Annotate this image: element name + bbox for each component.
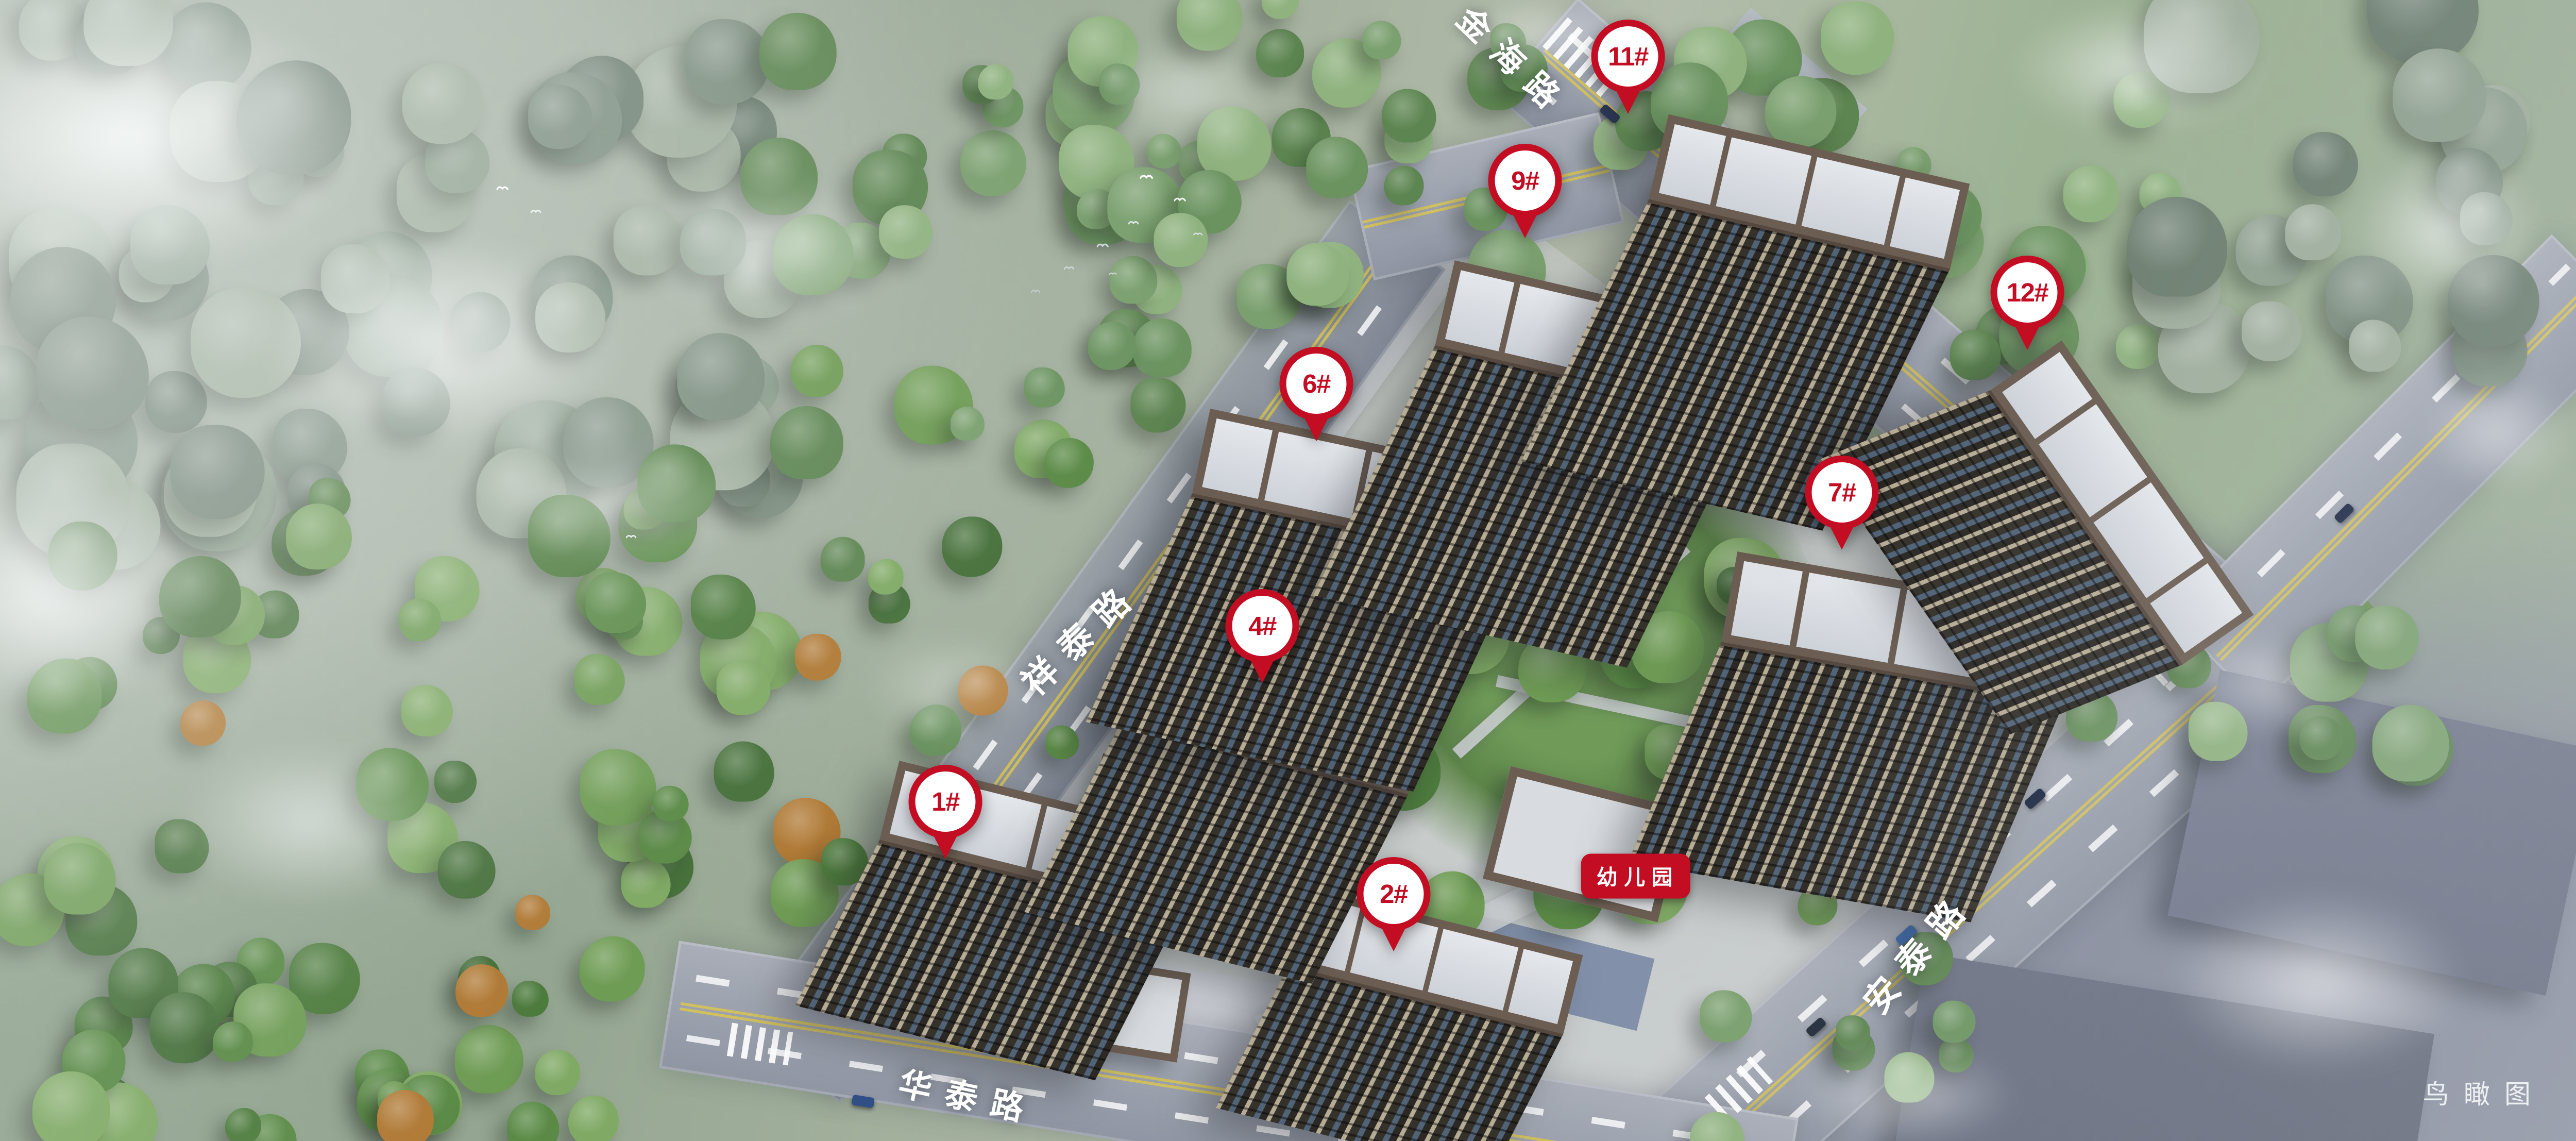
tree-clump xyxy=(1821,2,1894,75)
tree-clump xyxy=(507,1101,559,1141)
tree-clump xyxy=(145,371,207,433)
tree-clump xyxy=(1099,64,1140,105)
tree-clump xyxy=(1088,322,1136,370)
marker-circle: 2# xyxy=(1357,857,1431,931)
tree-clump xyxy=(759,13,837,90)
building-marker-4[interactable]: 4# xyxy=(1226,589,1299,683)
building-marker-9[interactable]: 9# xyxy=(1488,144,1562,238)
tree-clump xyxy=(84,0,174,66)
marker-label: 2# xyxy=(1380,879,1408,909)
tree-clump xyxy=(958,665,1008,715)
tree-clump xyxy=(1147,134,1181,168)
tree-clump xyxy=(1262,0,1299,19)
building-marker-7[interactable]: 7# xyxy=(1805,456,1879,550)
tree-clump xyxy=(680,209,746,276)
tree-clump xyxy=(714,742,774,802)
tree-clump xyxy=(149,993,220,1063)
tree-clump xyxy=(401,685,453,736)
tree-clump xyxy=(535,282,605,353)
marker-circle: 1# xyxy=(909,765,982,838)
tree-clump xyxy=(2355,606,2419,669)
tree-clump xyxy=(37,316,149,429)
aerial-rendering: 金海路 祥泰路 安泰路 华泰路 幼儿园 1# 2# 4# 6# 7# 9# 11… xyxy=(0,0,2576,1141)
tree-clump xyxy=(580,936,645,1002)
tree-clump xyxy=(1306,137,1368,198)
tree-clump xyxy=(653,786,689,821)
tree-clump xyxy=(357,748,429,820)
marker-label: 7# xyxy=(1828,477,1856,508)
tree-clump xyxy=(685,19,770,105)
tree-clump xyxy=(1256,29,1304,77)
marker-circle: 11# xyxy=(1591,20,1665,93)
tree-clump xyxy=(382,367,450,436)
tree-clump xyxy=(515,895,550,930)
tree-clump xyxy=(638,444,716,523)
tree-clump xyxy=(1363,21,1401,59)
tree-clump xyxy=(213,1021,253,1062)
tree-clump xyxy=(2127,197,2227,297)
tree-clump xyxy=(1765,76,1837,147)
scene-caption: 鸟瞰图 xyxy=(2423,1073,2545,1111)
tree-clump xyxy=(130,205,210,284)
marker-label: 1# xyxy=(931,786,959,817)
tree-clump xyxy=(568,1096,619,1141)
marker-label: 4# xyxy=(1248,611,1276,641)
tree-clump xyxy=(1933,1000,1976,1043)
tree-clump xyxy=(455,1025,523,1094)
tree-clump xyxy=(399,599,441,641)
tree-clump xyxy=(2144,0,2259,93)
tree-clump xyxy=(321,244,390,313)
marker-circle: 7# xyxy=(1805,456,1879,529)
tree-clump xyxy=(2460,192,2513,245)
tree-clump xyxy=(237,60,351,174)
tree-clump xyxy=(2448,255,2539,346)
tree-clump xyxy=(614,206,683,276)
tree-clump xyxy=(1177,0,1243,51)
tree-clump xyxy=(1044,438,1094,488)
tree-clump xyxy=(2242,301,2301,361)
marker-circle: 12# xyxy=(1991,256,2064,329)
tree-clump xyxy=(717,661,771,715)
tree-clump xyxy=(1286,243,1349,306)
tree-clump xyxy=(1024,367,1064,407)
tree-clump xyxy=(2299,716,2343,760)
marker-label: 11# xyxy=(1608,41,1648,72)
tree-clump xyxy=(225,1108,261,1141)
tree-clump xyxy=(1154,213,1208,267)
tree-clump xyxy=(586,572,646,632)
tree-clump xyxy=(434,761,477,803)
tree-clump xyxy=(1700,990,1752,1042)
tree-clump xyxy=(1384,166,1423,206)
kindergarten-badge: 幼儿园 xyxy=(1581,854,1690,899)
tree-clump xyxy=(1133,318,1192,377)
tree-clump xyxy=(535,1050,580,1096)
tree-clump xyxy=(942,516,1002,577)
tree-clump xyxy=(1382,89,1436,143)
marker-circle: 4# xyxy=(1226,589,1299,663)
tree-clump xyxy=(2116,324,2160,368)
building-marker-1[interactable]: 1# xyxy=(909,765,982,859)
tree-clump xyxy=(27,659,101,733)
marker-label: 12# xyxy=(2007,277,2048,308)
tree-clump xyxy=(677,333,765,421)
tree-clump xyxy=(438,841,496,899)
tree-clump xyxy=(1836,1015,1871,1050)
tree-clump xyxy=(450,292,511,353)
tree-clump xyxy=(512,981,548,1017)
tree-clump xyxy=(951,407,985,441)
tree-clump xyxy=(155,819,209,873)
tree-clump xyxy=(1045,726,1079,759)
tree-clump xyxy=(773,214,854,295)
tree-clump xyxy=(879,205,933,259)
building-marker-2[interactable]: 2# xyxy=(1357,857,1431,951)
tree-clump xyxy=(2063,166,2119,222)
tree-clump xyxy=(528,495,611,577)
tree-clump xyxy=(580,749,656,826)
tree-clump xyxy=(455,964,508,1017)
tree-clump xyxy=(1690,1112,1744,1141)
tree-clump xyxy=(978,64,1014,100)
building-marker-6[interactable]: 6# xyxy=(1280,347,1353,441)
marker-label: 9# xyxy=(1511,165,1539,196)
tree-clump xyxy=(820,537,865,582)
marker-circle: 9# xyxy=(1488,144,1562,217)
tree-clump xyxy=(791,344,843,397)
tree-clump xyxy=(159,556,241,637)
tree-clump xyxy=(1885,1052,1935,1102)
building-marker-12[interactable]: 12# xyxy=(1991,256,2064,350)
tree-clump xyxy=(910,704,961,756)
tree-clump xyxy=(2189,702,2248,761)
tree-clump xyxy=(770,406,843,479)
tree-clump xyxy=(574,654,625,704)
building-marker-11[interactable]: 11# xyxy=(1591,20,1665,114)
tree-clump xyxy=(960,130,1026,196)
tree-clump xyxy=(164,2,251,89)
marker-label: 6# xyxy=(1302,368,1330,399)
tree-clump xyxy=(528,85,592,149)
tree-clump xyxy=(868,559,903,594)
tree-clump xyxy=(191,288,301,398)
tree-clump xyxy=(691,575,756,640)
tree-clump xyxy=(402,63,483,144)
tree-clump xyxy=(48,521,117,590)
tree-clump xyxy=(2372,705,2449,782)
tree-clump xyxy=(740,138,818,215)
tree-clump xyxy=(794,634,841,681)
tree-clump xyxy=(2293,132,2358,197)
tree-clump xyxy=(1110,256,1158,304)
tree-clump xyxy=(180,700,226,746)
tree-clump xyxy=(1130,377,1185,432)
tree-clump xyxy=(2393,48,2487,142)
tree-clump xyxy=(286,504,352,569)
tree-clump xyxy=(2285,204,2342,261)
marker-circle: 6# xyxy=(1280,347,1353,421)
tree-clump xyxy=(171,425,265,519)
